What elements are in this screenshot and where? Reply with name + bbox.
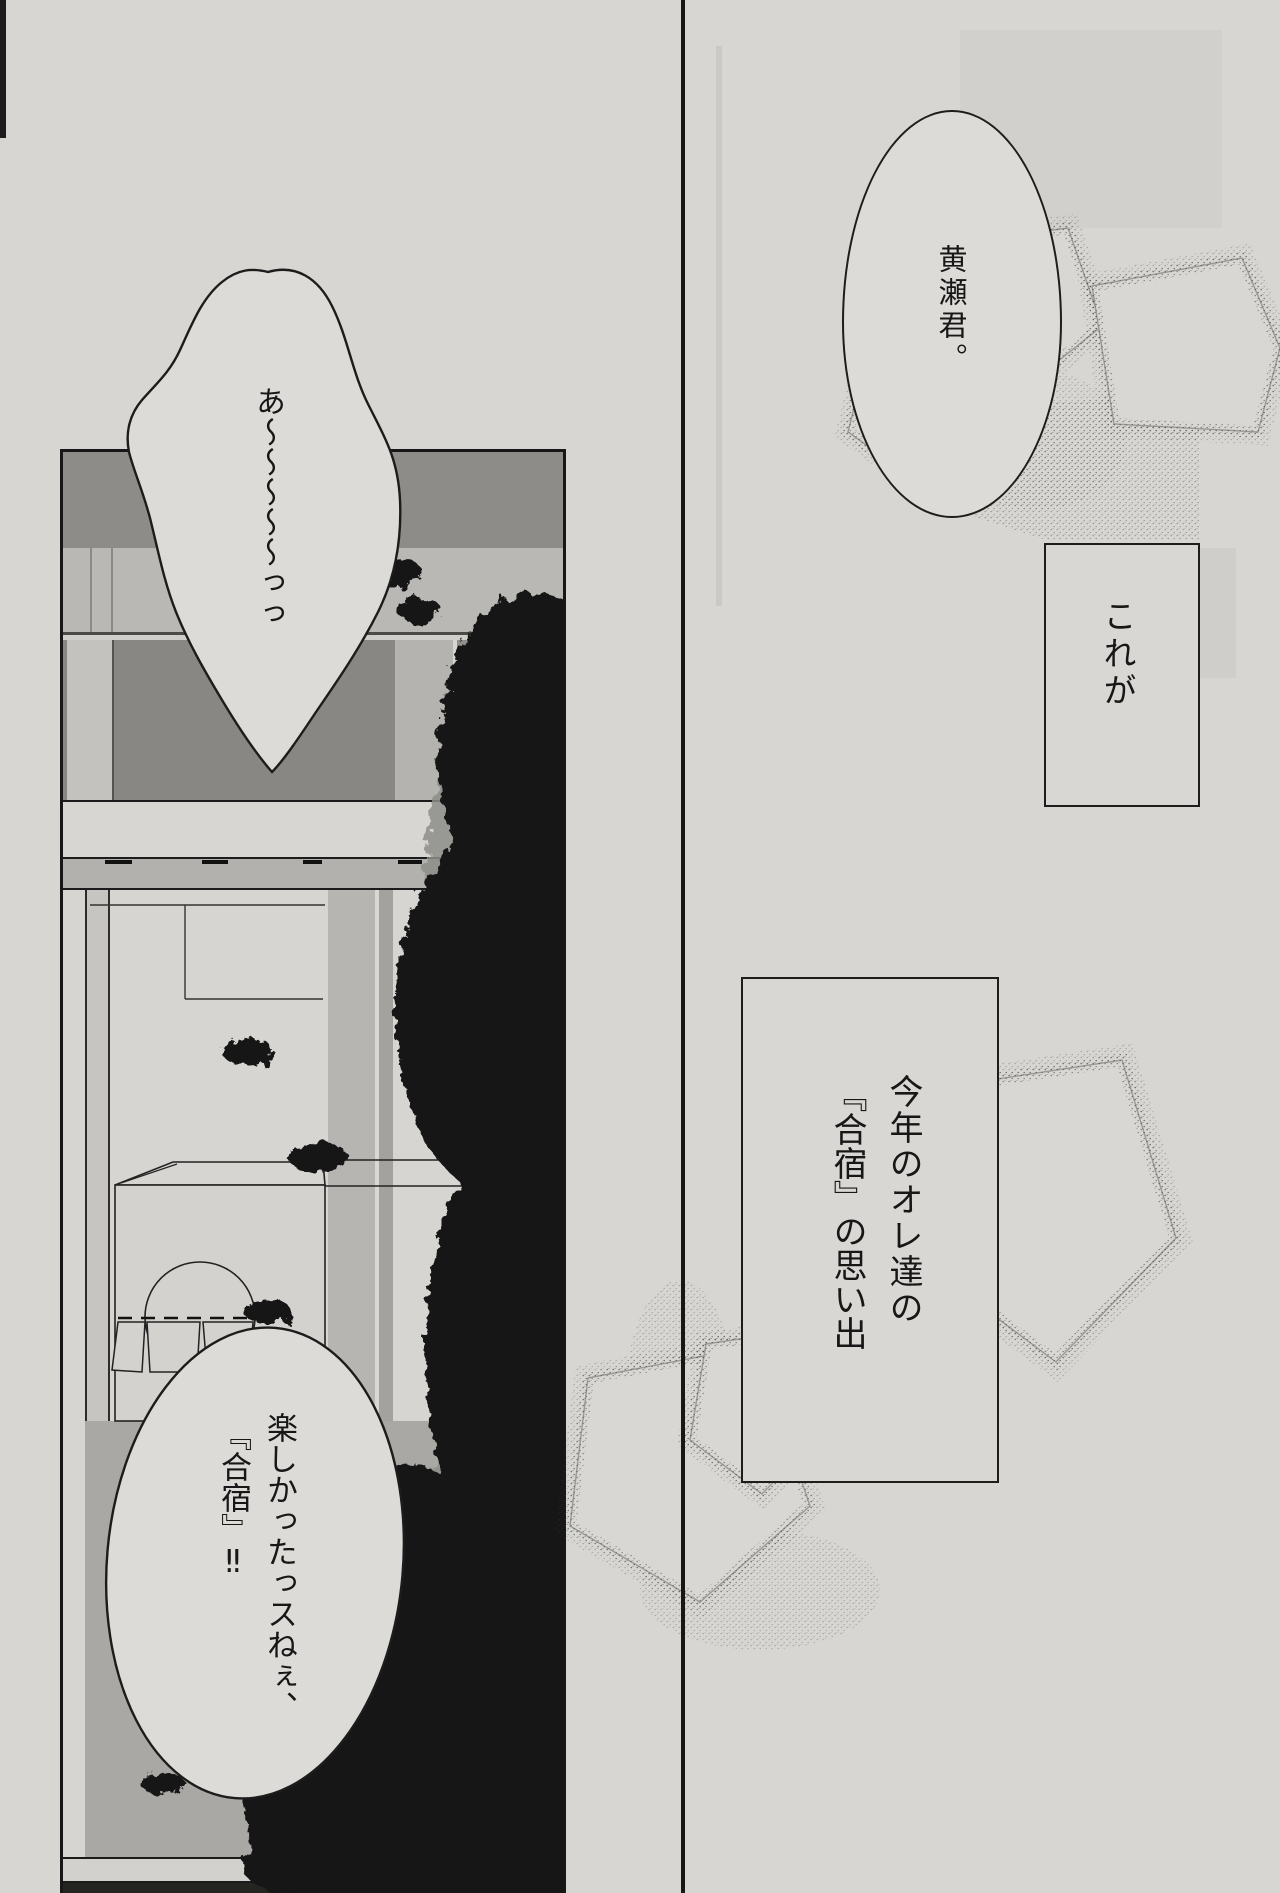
- top-bubble-tail: っっ: [250, 567, 285, 629]
- caption-large-text-left: 『合宿』の思い出: [830, 1078, 864, 1350]
- caption-small-text: これが: [1101, 599, 1134, 710]
- top-bubble-lead: あ: [250, 386, 285, 417]
- pentagon-decorations: [0, 0, 1280, 1893]
- bottom-bubble-text-right: 楽しかったっスねぇ、: [263, 1412, 294, 1722]
- panel-divider: [681, 0, 685, 1893]
- bottom-bubble-text-left: 『合宿』‼: [217, 1420, 248, 1580]
- caption-box-large: [741, 977, 999, 1483]
- caption-large-text-right: 今年のオレ達の: [886, 1074, 920, 1326]
- kise-bubble-text: 黄瀬君。: [936, 244, 965, 376]
- top-bubble-squiggle: 〜〜〜〜〜: [250, 417, 285, 567]
- scan-edge-mark: [0, 0, 6, 138]
- manga-page: あ〜〜〜〜〜っっ 黄瀬君。 これが 今年のオレ達の 『合宿』の思い出 楽しかった…: [0, 0, 1280, 1893]
- top-bubble-text: あ〜〜〜〜〜っっ: [252, 386, 282, 629]
